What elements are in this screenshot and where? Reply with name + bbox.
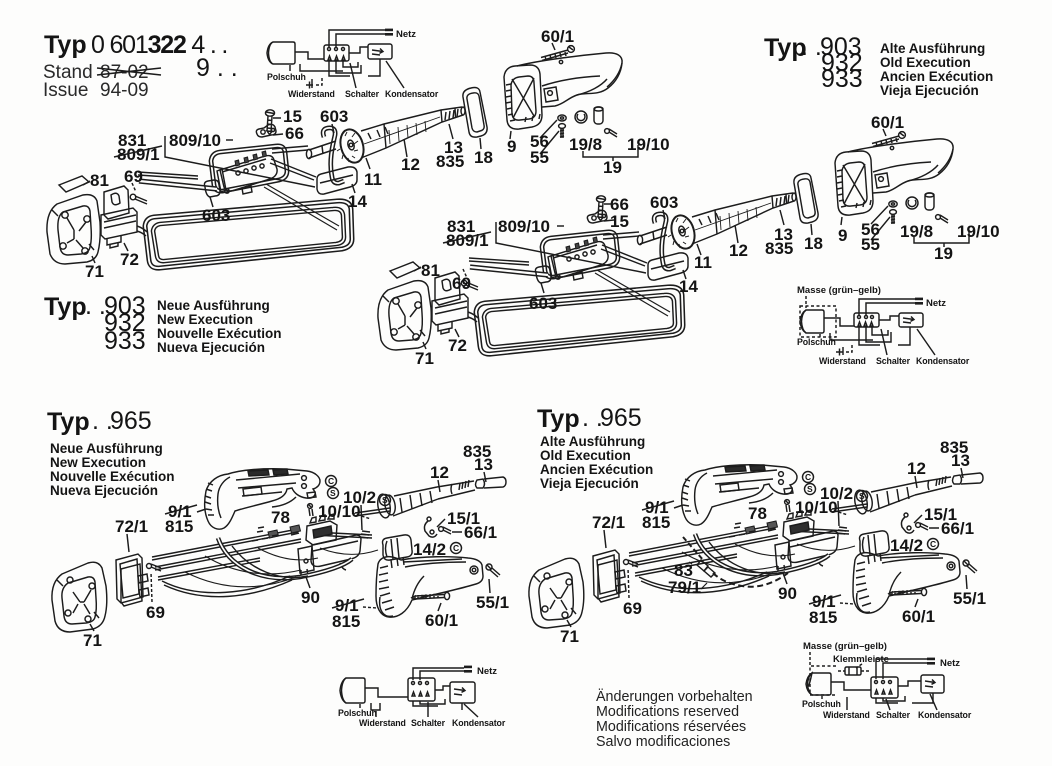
svg-text:835: 835 [436,152,464,171]
svg-text:Typ: Typ [537,405,580,433]
svg-text:809/10: 809/10 [169,131,221,150]
svg-text:Issue: Issue [43,80,88,101]
svg-text:Typ: Typ [44,31,87,59]
svg-text:Kondensator: Kondensator [452,718,506,728]
svg-text:Nueva Ejecución: Nueva Ejecución [50,483,158,498]
svg-text:Netz: Netz [940,658,960,669]
svg-text:71: 71 [85,262,104,281]
svg-text:Polschuh: Polschuh [797,337,836,347]
svg-text:Nouvelle Exécution: Nouvelle Exécution [157,326,282,341]
svg-text:81: 81 [90,171,109,190]
svg-text:66/1: 66/1 [941,519,974,538]
svg-text:60/1: 60/1 [902,607,935,626]
svg-text:55/1: 55/1 [476,593,509,612]
svg-text:9: 9 [507,137,516,156]
svg-text:72/1: 72/1 [592,513,625,532]
svg-text:933: 933 [104,327,146,355]
svg-text:69: 69 [452,274,471,293]
svg-text:9: 9 [838,226,847,245]
svg-text:69: 69 [124,167,143,186]
svg-text:13: 13 [474,455,493,474]
svg-text:933: 933 [821,65,863,93]
svg-text:55: 55 [530,148,549,167]
svg-text:Polschuh: Polschuh [267,72,306,82]
svg-text:66/1: 66/1 [464,523,497,542]
svg-text:Netz: Netz [477,666,497,677]
svg-text:965: 965 [600,404,642,432]
svg-text:71: 71 [560,627,579,646]
svg-text:60/1: 60/1 [871,113,904,132]
svg-text:Widerstand: Widerstand [819,356,866,366]
svg-text:Schalter: Schalter [411,718,446,728]
svg-text:Masse (grün–gelb): Masse (grün–gelb) [803,641,887,652]
svg-text:Neue Ausführung: Neue Ausführung [50,441,163,456]
svg-text:965: 965 [110,407,152,435]
svg-text:Kondensator: Kondensator [385,89,439,99]
svg-text:12: 12 [401,155,420,174]
svg-text:60/1: 60/1 [425,611,458,630]
svg-text:14: 14 [348,192,367,211]
svg-text:15: 15 [610,212,629,231]
svg-text:55: 55 [861,235,880,254]
svg-text:Vieja Ejecución: Vieja Ejecución [540,476,639,491]
svg-text:Schalter: Schalter [876,356,911,366]
svg-text:12: 12 [907,459,926,478]
svg-text:90: 90 [301,588,320,607]
svg-text:11: 11 [694,253,712,272]
svg-text:78: 78 [271,508,290,527]
svg-text:Widerstand: Widerstand [359,718,406,728]
svg-text:603: 603 [202,206,230,225]
svg-text:815: 815 [165,517,193,536]
svg-text:New Execution: New Execution [50,455,146,470]
svg-text:72/1: 72/1 [115,517,148,536]
svg-text:Nueva Ejecución: Nueva Ejecución [157,340,265,355]
svg-text:Netz: Netz [396,29,416,40]
svg-text:. .: . . [801,33,822,61]
svg-text:Ancien Exécution: Ancien Exécution [880,69,993,84]
svg-text:Widerstand: Widerstand [823,710,870,720]
svg-text:14/2: 14/2 [413,540,446,559]
svg-text:66: 66 [285,124,304,143]
svg-text:Neue Ausführung: Neue Ausführung [157,298,270,313]
svg-text:19/8: 19/8 [900,222,933,241]
svg-text:809/10: 809/10 [498,217,550,236]
svg-text:Polschuh: Polschuh [802,699,841,709]
svg-text:815: 815 [809,608,837,627]
svg-text:Salvo modificaciones: Salvo modificaciones [596,734,730,750]
svg-text:Widerstand: Widerstand [288,89,335,99]
svg-text:Modifications réservées: Modifications réservées [596,719,746,735]
svg-text:Nouvelle Exécution: Nouvelle Exécution [50,469,175,484]
svg-text:13: 13 [951,451,970,470]
svg-text:72: 72 [448,336,467,355]
svg-text:Modifications reserved: Modifications reserved [596,704,739,720]
svg-text:94-09: 94-09 [100,80,149,101]
svg-text:11: 11 [364,170,382,189]
svg-text:12: 12 [430,463,449,482]
svg-text:71: 71 [83,631,102,650]
svg-text:Alte Ausführung: Alte Ausführung [540,434,645,449]
svg-text:Masse (grün–gelb): Masse (grün–gelb) [797,285,881,296]
svg-text:603: 603 [320,107,348,126]
svg-text:Alte Ausführung: Alte Ausführung [880,41,985,56]
svg-text:815: 815 [332,612,360,631]
svg-text:60/1: 60/1 [541,27,574,46]
svg-text:69: 69 [146,603,165,622]
svg-text:9 . .: 9 . . [196,54,238,82]
svg-text:10/10: 10/10 [318,502,361,521]
svg-text:Netz: Netz [926,298,946,309]
svg-text:603: 603 [529,294,557,313]
svg-text:Old Execution: Old Execution [540,448,631,463]
svg-text:71: 71 [415,349,434,368]
svg-text:Ancien Exécution: Ancien Exécution [540,462,653,477]
svg-text:19/10: 19/10 [627,135,670,154]
svg-text:Kondensator: Kondensator [916,356,970,366]
svg-text:12: 12 [729,241,748,260]
svg-text:Polschuh: Polschuh [338,708,377,718]
svg-text:603: 603 [650,193,678,212]
svg-text:78: 78 [748,504,767,523]
svg-text:Typ: Typ [47,408,90,436]
svg-text:19: 19 [603,158,622,177]
svg-text:Schalter: Schalter [876,710,911,720]
svg-text:. .: . . [85,292,106,320]
svg-text:69: 69 [623,599,642,618]
svg-text:79/1: 79/1 [668,578,701,597]
svg-text:Schalter: Schalter [345,89,380,99]
svg-text:Typ: Typ [44,293,87,321]
svg-text:72: 72 [120,250,139,269]
svg-text:19/10: 19/10 [957,222,1000,241]
svg-text:815: 815 [642,513,670,532]
svg-text:18: 18 [474,148,493,167]
svg-text:19/8: 19/8 [569,135,602,154]
svg-text:90: 90 [778,584,797,603]
svg-text:835: 835 [765,239,793,258]
svg-text:19: 19 [934,244,953,263]
svg-text:14/2: 14/2 [890,536,923,555]
svg-text:Kondensator: Kondensator [918,710,972,720]
svg-text:Old Execution: Old Execution [880,55,971,70]
svg-text:New Execution: New Execution [157,312,253,327]
svg-text:55/1: 55/1 [953,589,986,608]
svg-text:10/10: 10/10 [795,498,838,517]
svg-text:Vieja Ejecución: Vieja Ejecución [880,83,979,98]
svg-text:18: 18 [804,234,823,253]
svg-text:Änderungen vorbehalten: Änderungen vorbehalten [596,688,753,705]
svg-text:14: 14 [679,277,698,296]
svg-text:81: 81 [421,261,440,280]
